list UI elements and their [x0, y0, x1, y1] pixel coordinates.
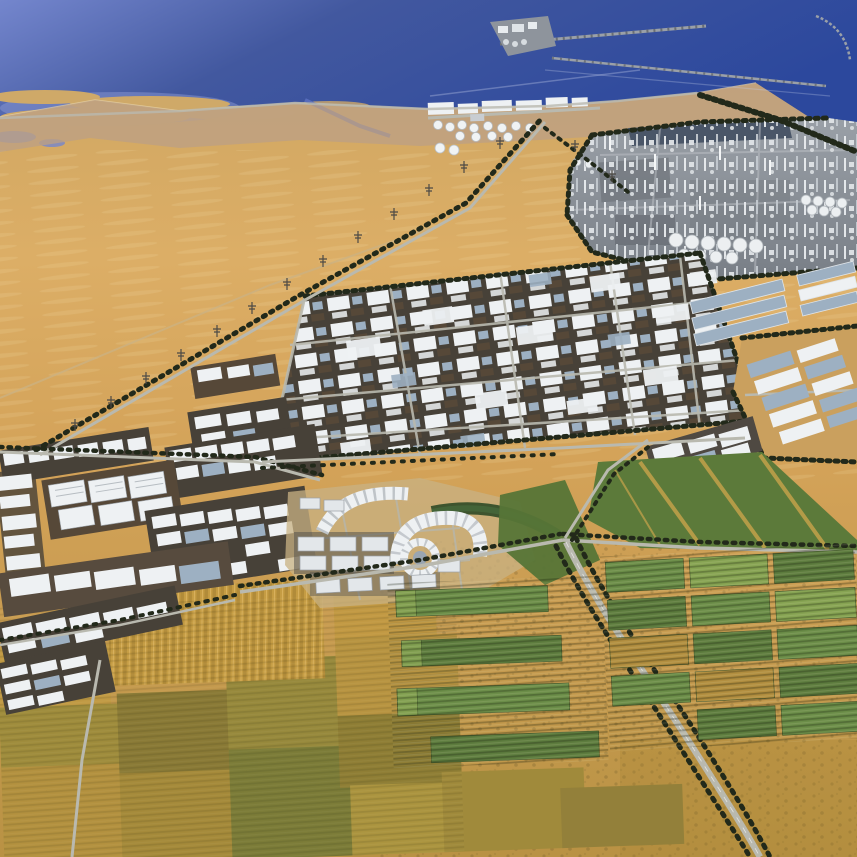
- east-field-grid: [600, 543, 857, 751]
- masterplan-rendering: [0, 0, 857, 857]
- west-field-strips: [387, 576, 608, 768]
- scene-canvas: [0, 0, 857, 857]
